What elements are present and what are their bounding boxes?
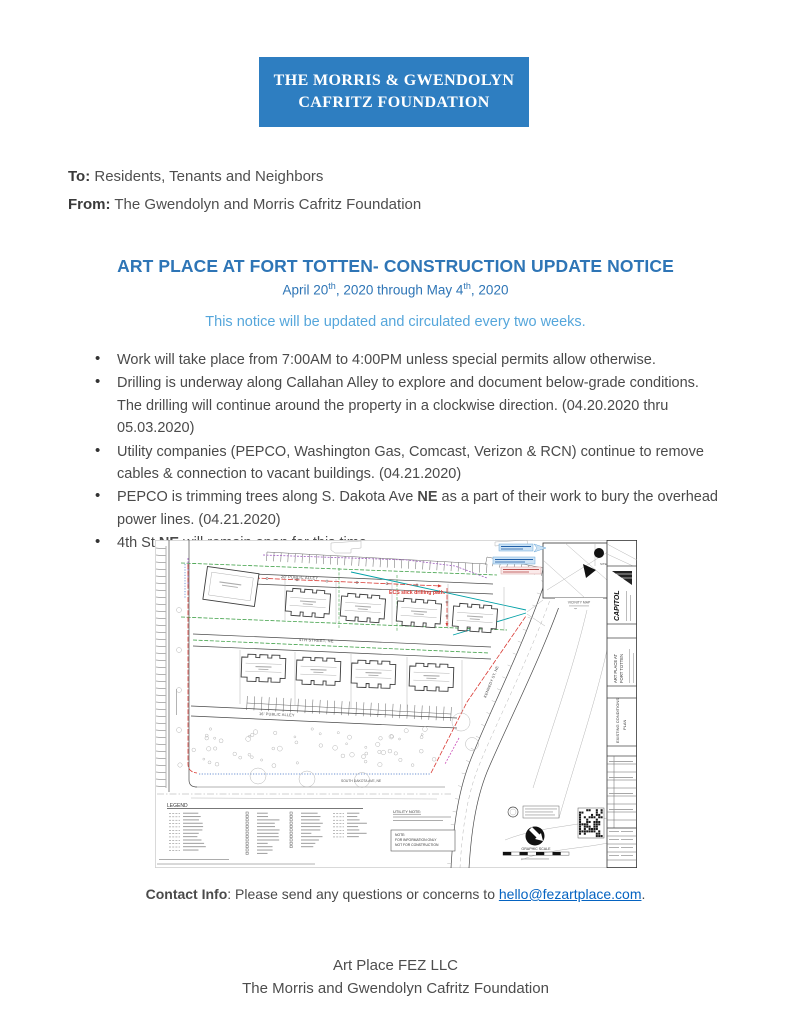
footer-company: Art Place FEZ LLC <box>0 957 791 974</box>
note-line1: NOTE: <box>395 833 405 837</box>
sheet-title-line2: PLAN <box>622 719 627 730</box>
foundation-banner-line2: CAFRITZ FOUNDATION <box>298 92 489 114</box>
utility-note-title: UTILITY NOTE: <box>393 809 421 814</box>
building-row2-1 <box>241 654 286 683</box>
building-row1-3 <box>396 598 442 628</box>
vicinity-caption: VICINITY MAP <box>568 601 591 605</box>
vicinity-dot <box>594 548 604 558</box>
to-value: Residents, Tenants and Neighbors <box>90 168 323 185</box>
note-line3: NOT FOR CONSTRUCTION <box>395 843 439 847</box>
building-row1-1 <box>285 588 331 618</box>
graphic-scale-label: GRAPHIC SCALE <box>521 847 551 851</box>
qr-code <box>578 808 604 838</box>
building-row2-3 <box>351 660 396 689</box>
sheet-title-line1: EXISTING CONDITIONS <box>615 698 620 743</box>
foundation-banner: THE MORRIS & GWENDOLYN CAFRITZ FOUNDATIO… <box>259 57 529 127</box>
update-note: This notice will be updated and circulat… <box>0 314 791 330</box>
from-label: From: <box>68 196 111 213</box>
building-row1-2 <box>340 593 386 623</box>
page-title: ART PLACE AT FORT TOTTEN- CONSTRUCTION U… <box>0 256 791 277</box>
date-range: April 20th, 2020 through May 4th, 2020 <box>0 281 791 298</box>
firm-name: CAPITOL <box>614 590 621 621</box>
drill-path-label: ECS slick drilling path. <box>389 590 446 596</box>
email-link[interactable]: hello@fezartplace.com <box>499 886 642 902</box>
bullet-glyph: • <box>95 348 100 370</box>
building-row1-4 <box>452 603 498 633</box>
bullet-item: •Drilling is underway along Callahan All… <box>84 372 718 439</box>
legend-title: LEGEND <box>167 803 188 809</box>
bullet-glyph: • <box>95 440 100 462</box>
building-slanted <box>203 567 259 607</box>
bullet-glyph: • <box>95 531 100 553</box>
to-label: To: <box>68 168 90 185</box>
building-row2-2 <box>296 657 341 686</box>
avenue-label: SOUTH DAKOTA AVE, NE <box>341 779 382 783</box>
project-name-line2: FORT TOTTEN <box>619 654 624 683</box>
from-value: The Gwendolyn and Morris Cafritz Foundat… <box>111 196 422 213</box>
title-block: CAPITOL ART PLACE AT FORT TOTTEN EXISTIN… <box>607 540 637 867</box>
bullet-list: •Work will take place from 7:00AM to 4:0… <box>84 349 718 556</box>
foundation-banner-line1: THE MORRIS & GWENDOLYN <box>274 70 515 92</box>
bullet-item: •Utility companies (PEPCO, Washington Ga… <box>84 441 718 486</box>
bullet-item: •Work will take place from 7:00AM to 4:0… <box>84 349 718 371</box>
to-line: To: Residents, Tenants and Neighbors <box>68 168 323 185</box>
site-plan-figure: 20' PUBLIC ALLEY 4TH STREET, NE 16' PUBL… <box>155 540 637 868</box>
bullet-glyph: • <box>95 371 100 393</box>
vicinity-map: SITE VICINITY MAP <box>543 543 615 608</box>
site-plan-svg: 20' PUBLIC ALLEY 4TH STREET, NE 16' PUBL… <box>155 540 637 868</box>
north-arrow-icon <box>526 827 545 846</box>
bullet-glyph: • <box>95 485 100 507</box>
project-name-line1: ART PLACE AT <box>613 653 618 683</box>
contact-info: Contact Info: Please send any questions … <box>0 886 791 902</box>
notice-page: THE MORRIS & GWENDOLYN CAFRITZ FOUNDATIO… <box>0 0 791 1023</box>
bullet-item: •PEPCO is trimming trees along S. Dakota… <box>84 486 718 531</box>
footer-foundation: The Morris and Gwendolyn Cafritz Foundat… <box>0 980 791 997</box>
from-line: From: The Gwendolyn and Morris Cafritz F… <box>68 196 421 213</box>
building-row2-4 <box>409 663 454 692</box>
note-line2: FOR INFORMATION ONLY <box>395 838 437 842</box>
site-marker-label: SITE <box>600 562 607 566</box>
